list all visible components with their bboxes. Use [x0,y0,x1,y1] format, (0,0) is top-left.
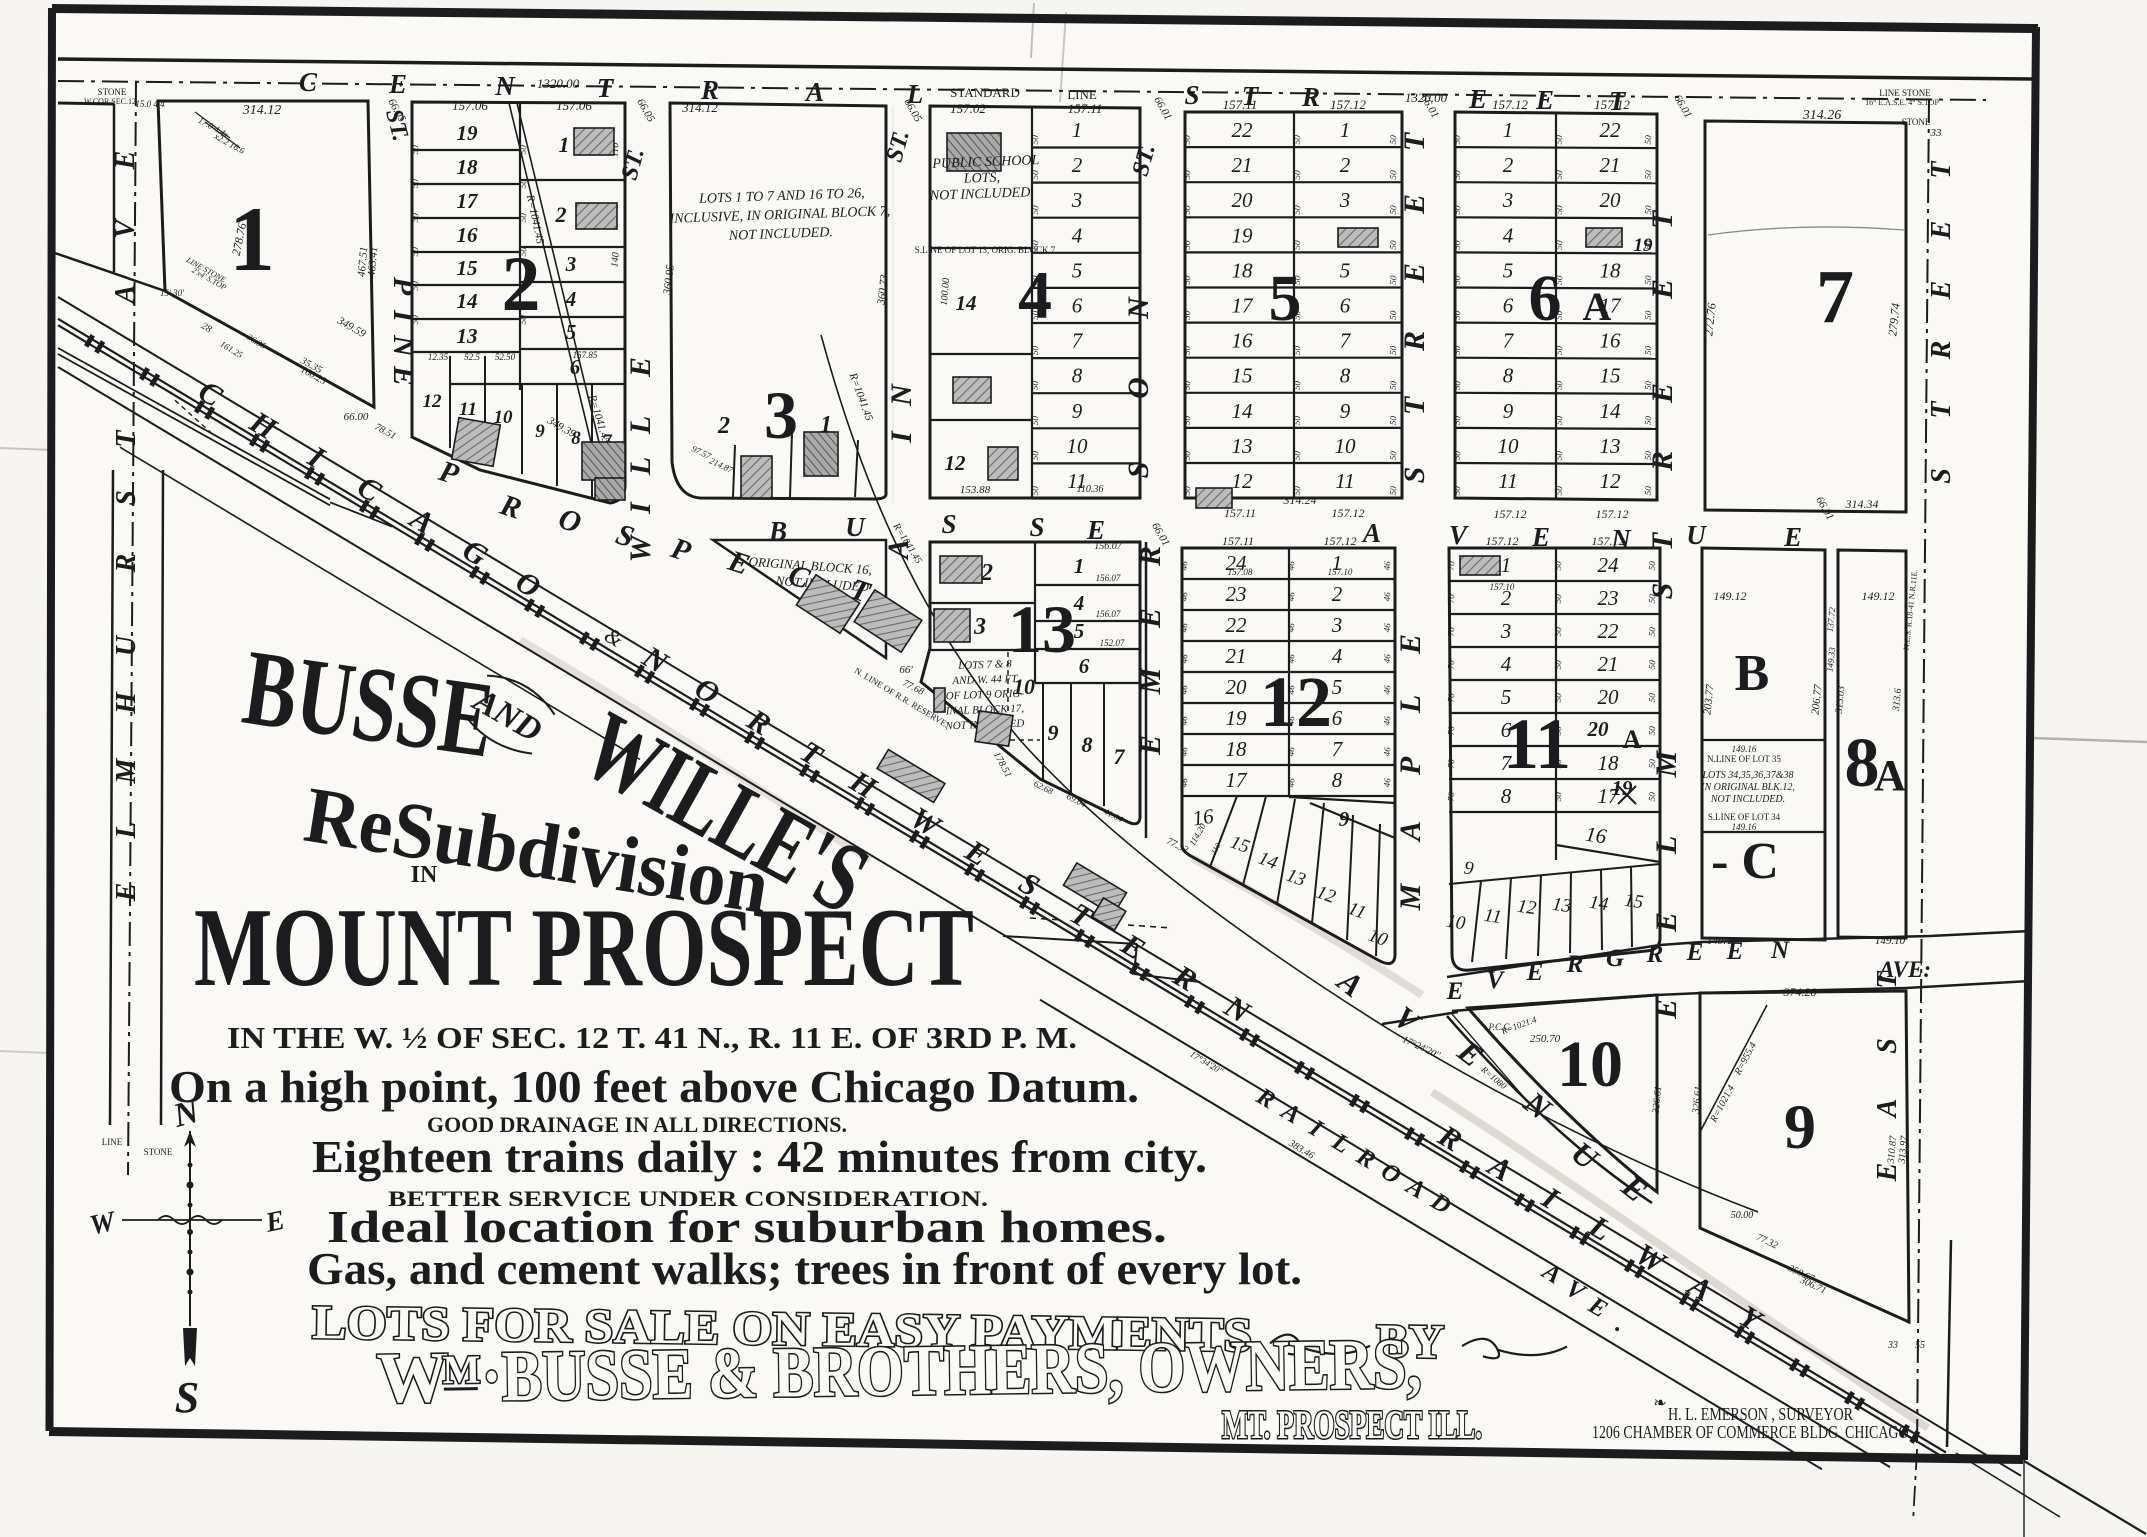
svg-text:E: E [1535,85,1554,115]
svg-text:L: L [1650,836,1683,855]
svg-text:13: 13 [1600,434,1621,458]
svg-text:8: 8 [1332,768,1343,792]
svg-text:19: 19 [1232,223,1254,247]
svg-text:50: 50 [1182,275,1193,285]
svg-text:T: T [111,429,142,448]
svg-text:50: 50 [1182,310,1193,320]
svg-text:157.10: 157.10 [1328,567,1353,577]
svg-text:E: E [1398,194,1431,215]
svg-text:50.00: 50.00 [1731,1210,1754,1221]
svg-text:50: 50 [1182,415,1193,425]
svg-text:18: 18 [1600,258,1622,282]
svg-text:50: 50 [1388,415,1399,425]
svg-text:314.24: 314.24 [1283,493,1317,507]
svg-text:50: 50 [1182,240,1193,250]
svg-text:50: 50 [1554,134,1565,144]
svg-text:16: 16 [1232,329,1254,353]
svg-text:50: 50 [1553,758,1564,768]
svg-text:I: I [624,501,657,515]
svg-text:50: 50 [1182,205,1193,215]
svg-text:10: 10 [1498,434,1520,458]
svg-text:1: 1 [1503,118,1514,142]
svg-text:50: 50 [1030,275,1041,285]
svg-text:50: 50 [1554,485,1565,495]
svg-text:4: 4 [1501,652,1512,676]
svg-text:R: R [1398,331,1431,352]
svg-text:46: 46 [1382,622,1393,632]
svg-text:152.07: 152.07 [1100,638,1125,648]
svg-text:50: 50 [1292,205,1303,215]
svg-text:AVE:: AVE: [1877,957,1931,982]
svg-text:46: 46 [1382,746,1393,756]
svg-text:A: A [1583,284,1612,329]
svg-text:46: 46 [1286,622,1297,632]
svg-text:5: 5 [1503,258,1514,282]
svg-text:3: 3 [764,377,798,453]
svg-text:156.07: 156.07 [1094,541,1123,552]
svg-text:50: 50 [1030,240,1041,250]
svg-text:E: E [1646,279,1679,300]
svg-text:46: 46 [1286,777,1297,787]
svg-text:50: 50 [1554,380,1565,390]
svg-text:50: 50 [1647,791,1658,801]
svg-text:7: 7 [1503,329,1515,353]
svg-text:55: 55 [1915,1340,1925,1351]
svg-text:157.12: 157.12 [1494,507,1527,521]
svg-text:E: E [1650,912,1683,933]
svg-text:E: E [1872,1163,1903,1183]
svg-text:A: A [1623,725,1642,754]
svg-text:50: 50 [1388,380,1399,390]
svg-text:12: 12 [423,391,443,412]
svg-text:50: 50 [1452,275,1463,285]
svg-text:46: 46 [1179,653,1190,663]
svg-text:N.LINE OF LOT 35: N.LINE OF LOT 35 [1707,754,1781,764]
svg-text:50: 50 [1554,169,1565,179]
svg-text:15: 15 [1232,364,1253,388]
svg-text:11: 11 [1335,469,1354,493]
svg-text:46: 46 [1179,622,1190,632]
svg-text:L: L [111,821,142,839]
svg-text:2: 2 [502,240,541,327]
svg-text:LOTS,: LOTS, [963,170,1001,186]
svg-text:50: 50 [1452,240,1463,250]
svg-text:LINE STONE: LINE STONE [1879,88,1931,98]
svg-text:50: 50 [1030,345,1041,355]
svg-text:V: V [110,217,141,238]
svg-text:6: 6 [1529,262,1562,335]
svg-text:50: 50 [1030,205,1041,215]
svg-text:46: 46 [1286,560,1297,570]
svg-text:50: 50 [1647,725,1658,735]
svg-text:MOUNT PROSPECT: MOUNT PROSPECT [194,886,974,1010]
svg-text:314.26: 314.26 [1802,108,1842,123]
svg-text:G: G [1606,945,1624,972]
svg-text:16: 16 [1600,329,1622,353]
svg-text:LINE: LINE [1067,87,1097,102]
svg-text:50: 50 [1030,169,1041,179]
svg-text:12: 12 [1232,469,1254,493]
svg-text:50: 50 [410,314,421,324]
svg-text:1320.00: 1320.00 [537,76,580,91]
svg-text:L: L [624,416,657,435]
svg-text:157.12: 157.12 [1596,507,1629,521]
svg-text:C: C [299,67,318,97]
svg-text:R: R [1646,451,1679,472]
svg-text:50: 50 [1643,345,1654,355]
svg-text:149.16: 149.16 [1732,744,1757,754]
svg-text:12: 12 [1600,469,1622,493]
svg-text:S: S [1122,462,1155,479]
svg-text:50: 50 [1554,450,1565,460]
svg-text:70: 70 [1446,560,1457,570]
svg-text:S: S [941,509,956,539]
svg-text:R: R [1926,341,1957,361]
svg-text:13: 13 [1551,894,1573,917]
svg-text:21: 21 [1232,153,1253,177]
svg-text:A: A [1872,1099,1903,1120]
svg-text:15: 15 [457,256,478,280]
svg-text:E: E [1650,999,1683,1020]
svg-text:11: 11 [1483,905,1503,928]
svg-text:18: 18 [1232,258,1254,282]
svg-text:50: 50 [1647,593,1658,603]
svg-text:157.12: 157.12 [1594,97,1630,112]
svg-text:70: 70 [1446,791,1457,801]
svg-text:46: 46 [1382,560,1393,570]
svg-text:12: 12 [1516,896,1538,920]
svg-text:M: M [1394,882,1427,911]
svg-text:50: 50 [1292,275,1303,285]
svg-text:70: 70 [1446,626,1457,636]
svg-text:E: E [111,883,142,903]
svg-text:50: 50 [1030,380,1041,390]
svg-text:O: O [1122,377,1155,399]
svg-text:E: E [1926,281,1957,301]
svg-text:N: N [1770,937,1790,964]
svg-text:52.5: 52.5 [464,352,480,362]
svg-text:23: 23 [1226,582,1247,606]
svg-text:50: 50 [1388,205,1399,215]
svg-text:6: 6 [1332,706,1343,730]
svg-text:E: E [387,365,420,386]
svg-text:7: 7 [1114,744,1126,769]
svg-text:46: 46 [1179,591,1190,601]
svg-text:50: 50 [1182,134,1193,144]
svg-text:15: 15 [1600,364,1621,388]
svg-text:46: 46 [1286,746,1297,756]
svg-text:17: 17 [1226,768,1249,792]
svg-text:50: 50 [1182,380,1193,390]
svg-text:E: E [1726,938,1744,965]
svg-text:70: 70 [1446,659,1457,669]
svg-text:9: 9 [1048,720,1059,745]
svg-text:50: 50 [1643,169,1654,179]
svg-text:STONE: STONE [144,1147,173,1157]
svg-text:- C: - C [1711,833,1779,890]
svg-text:1: 1 [1501,553,1512,577]
svg-text:8: 8 [1503,364,1514,388]
svg-text:2: 2 [1340,153,1351,177]
svg-text:15.0 4.4: 15.0 4.4 [135,99,165,109]
svg-text:52.50: 52.50 [495,352,516,362]
svg-text:A: A [1394,821,1427,843]
svg-text:50: 50 [1030,485,1041,495]
svg-text:18: 18 [1598,751,1620,775]
svg-text:50: 50 [1182,169,1193,179]
svg-text:50: 50 [1292,415,1303,425]
svg-text:20: 20 [1232,188,1254,212]
svg-text:10: 10 [1335,434,1357,458]
svg-text:T: T [1646,209,1679,229]
svg-text:50: 50 [1554,275,1565,285]
svg-text:149.12: 149.12 [1862,589,1895,603]
svg-text:157.12: 157.12 [1330,97,1366,112]
svg-text:P: P [1394,756,1427,776]
svg-text:46: 46 [1286,684,1297,694]
svg-text:R: R [1646,941,1664,968]
svg-text:L: L [1394,695,1427,714]
svg-text:16: 16 [457,223,479,247]
svg-text:50: 50 [1647,692,1658,702]
svg-text:10: 10 [1445,911,1467,935]
svg-text:E: E [624,357,657,378]
svg-text:50: 50 [410,212,421,222]
svg-text:13: 13 [457,324,478,348]
svg-text:20: 20 [1226,675,1248,699]
svg-text:157.12: 157.12 [1492,97,1528,112]
svg-text:U: U [1686,520,1707,550]
svg-text:N: N [885,383,918,407]
svg-text:46: 46 [1179,560,1190,570]
svg-text:2: 2 [1072,153,1083,177]
svg-text:50: 50 [1452,169,1463,179]
svg-text:70: 70 [1446,593,1457,603]
svg-text:1: 1 [559,132,570,157]
svg-text:T: T [1926,400,1957,419]
svg-text:5: 5 [1072,258,1083,282]
svg-text:4: 4 [1503,223,1514,247]
svg-text:50: 50 [1452,345,1463,355]
svg-text:MT. PROSPECT ILL.: MT. PROSPECT ILL. [1222,1402,1482,1447]
svg-text:A: A [804,77,824,107]
svg-text:On a high point, 100 feet abov: On a high point, 100 feet above Chicago … [169,1061,1139,1112]
svg-text:50: 50 [1553,593,1564,603]
svg-text:50: 50 [1647,560,1658,570]
svg-text:N: N [387,334,420,358]
svg-text:13: 13 [1232,434,1253,458]
svg-text:50: 50 [1553,560,1564,570]
svg-text:18: 18 [457,155,479,179]
svg-text:M: M [111,757,142,784]
svg-text:50: 50 [1388,275,1399,285]
svg-text:157.11: 157.11 [1068,101,1103,116]
svg-text:Eighteen trains daily : 42 min: Eighteen trains daily : 42 minutes from … [312,1131,1207,1182]
svg-text:I: I [885,430,918,444]
svg-text:46: 46 [1179,684,1190,694]
svg-text:E: E [110,151,141,171]
svg-text:46: 46 [1382,715,1393,725]
svg-text:N: N [494,71,516,101]
svg-text:18: 18 [1226,737,1248,761]
svg-text:E: E [1686,939,1704,966]
svg-text:V: V [1487,967,1506,994]
svg-text:T: T [597,73,615,103]
svg-text:153.88: 153.88 [960,484,991,496]
svg-text:250.70: 250.70 [1530,1033,1561,1045]
svg-text:50: 50 [1647,659,1658,669]
svg-text:50: 50 [1553,659,1564,669]
svg-text:10: 10 [1557,1028,1623,1101]
svg-text:8: 8 [1340,364,1351,388]
svg-text:H: H [111,691,142,715]
svg-text:T: T [1926,160,1957,179]
svg-text:3: 3 [565,252,577,276]
svg-text:46: 46 [1382,684,1393,694]
svg-text:314.34: 314.34 [1845,497,1879,511]
svg-text:E: E [1926,221,1957,241]
svg-text:50: 50 [1553,725,1564,735]
svg-text:W: W [376,1337,449,1418]
svg-text:LINE: LINE [102,1137,123,1147]
svg-text:22: 22 [1226,613,1248,637]
svg-text:5: 5 [1269,262,1302,335]
svg-text:E: E [1398,263,1431,284]
svg-text:A: A [1874,751,1906,800]
svg-text:24: 24 [1598,553,1620,577]
svg-text:149.12: 149.12 [1714,589,1747,603]
svg-text:R: R [1301,82,1320,112]
svg-text:50: 50 [1030,310,1041,320]
svg-text:7: 7 [1340,329,1352,353]
svg-text:66.00: 66.00 [344,411,369,423]
svg-text:3: 3 [1500,619,1512,643]
svg-text:157.11: 157.11 [1222,534,1254,548]
svg-text:STONE: STONE [98,87,127,97]
svg-text:S: S [1029,512,1044,542]
svg-text:LOTS 7 & 8: LOTS 7 & 8 [957,658,1012,672]
svg-text:157.12: 157.12 [1592,534,1625,548]
svg-text:IN THE W. ½ OF SEC. 12 T. 41 N: IN THE W. ½ OF SEC. 12 T. 41 N., R. 11 E… [227,1020,1077,1055]
svg-text:H. L. EMERSON , SURVEYOR: H. L. EMERSON , SURVEYOR [1668,1404,1853,1424]
svg-text:46: 46 [1382,591,1393,601]
svg-text:21: 21 [1598,652,1619,676]
svg-text:50: 50 [1292,134,1303,144]
svg-text:8: 8 [1072,364,1083,388]
svg-text:13: 13 [1008,591,1076,667]
svg-text:46: 46 [1286,715,1297,725]
svg-text:T: T [1398,395,1431,415]
svg-text:E: E [1468,84,1487,114]
svg-text:E: E [1526,959,1544,986]
svg-text:11: 11 [1498,469,1517,493]
svg-text:50: 50 [1030,134,1041,144]
svg-text:LOTS 34,35,36,37&38: LOTS 34,35,36,37&38 [1701,770,1793,781]
svg-text:50: 50 [1292,310,1303,320]
svg-text:50: 50 [1452,310,1463,320]
svg-text:50: 50 [1030,415,1041,425]
svg-text:50: 50 [518,212,529,222]
svg-text:50: 50 [518,178,529,188]
svg-text:156.07: 156.07 [1096,609,1121,619]
svg-text:149.16: 149.16 [1732,822,1757,832]
svg-text:156.07: 156.07 [1096,573,1121,583]
svg-text:S: S [1184,80,1199,110]
svg-text:50: 50 [1292,169,1303,179]
svg-text:4: 4 [1072,223,1083,247]
svg-text:9: 9 [1072,399,1083,423]
svg-text:19: 19 [1226,706,1248,730]
svg-text:50: 50 [1553,626,1564,636]
svg-text:50: 50 [1554,240,1565,250]
svg-text:50: 50 [1388,134,1399,144]
svg-text:8: 8 [1501,784,1512,808]
svg-text:A: A [1361,518,1381,548]
svg-text:157.12: 157.12 [1324,534,1357,548]
svg-text:3: 3 [973,614,986,640]
svg-text:50: 50 [410,144,421,154]
svg-text:50: 50 [1643,310,1654,320]
svg-text:3: 3 [1339,188,1351,212]
svg-text:7: 7 [1072,329,1084,353]
svg-text:S: S [175,1373,199,1422]
svg-text:14: 14 [956,291,977,315]
svg-text:3: 3 [1071,188,1083,212]
svg-text:17: 17 [457,189,480,213]
svg-text:U: U [111,634,142,656]
svg-text:50: 50 [1452,450,1463,460]
svg-text:4: 4 [1332,644,1343,668]
svg-text:S.LINE OF LOT 34: S.LINE OF LOT 34 [1708,812,1781,822]
svg-text:4: 4 [1018,257,1052,333]
svg-text:16: 16 [1584,822,1609,849]
svg-text:10: 10 [1067,434,1089,458]
svg-text:50: 50 [1292,345,1303,355]
svg-text:50: 50 [1554,310,1565,320]
svg-text:B: B [1735,645,1770,702]
svg-text:46: 46 [1179,715,1190,725]
svg-text:21: 21 [1600,153,1621,177]
svg-text:1: 1 [1072,118,1083,142]
svg-text:20: 20 [1598,685,1620,709]
svg-text:157.02: 157.02 [950,101,986,116]
svg-text:E: E [1783,522,1802,552]
svg-text:3: 3 [1502,188,1514,212]
svg-text:50: 50 [1452,415,1463,425]
svg-text:22: 22 [1232,118,1254,142]
svg-text:50: 50 [1553,692,1564,702]
svg-text:70: 70 [1446,758,1457,768]
svg-text:T: T [1398,131,1431,151]
svg-text:50: 50 [1292,240,1303,250]
svg-text:6: 6 [1503,294,1514,318]
svg-text:50: 50 [410,280,421,290]
svg-text:9: 9 [1503,399,1514,423]
svg-text:46: 46 [1179,777,1190,787]
svg-text:66': 66' [899,664,913,676]
svg-text:E: E [388,69,407,99]
svg-text:17: 17 [1232,294,1255,318]
svg-text:50: 50 [1292,450,1303,460]
svg-text:L: L [624,457,657,476]
svg-text:1206 CHAMBER OF COMMERCE BLDG.: 1206 CHAMBER OF COMMERCE BLDG. CHICAGO. [1592,1422,1912,1442]
svg-text:14: 14 [1232,399,1254,423]
svg-text:22: 22 [1598,619,1620,643]
svg-text:46: 46 [1382,653,1393,663]
svg-text:46: 46 [1179,746,1190,756]
svg-text:12: 12 [945,451,967,475]
svg-text:11: 11 [1503,704,1571,784]
